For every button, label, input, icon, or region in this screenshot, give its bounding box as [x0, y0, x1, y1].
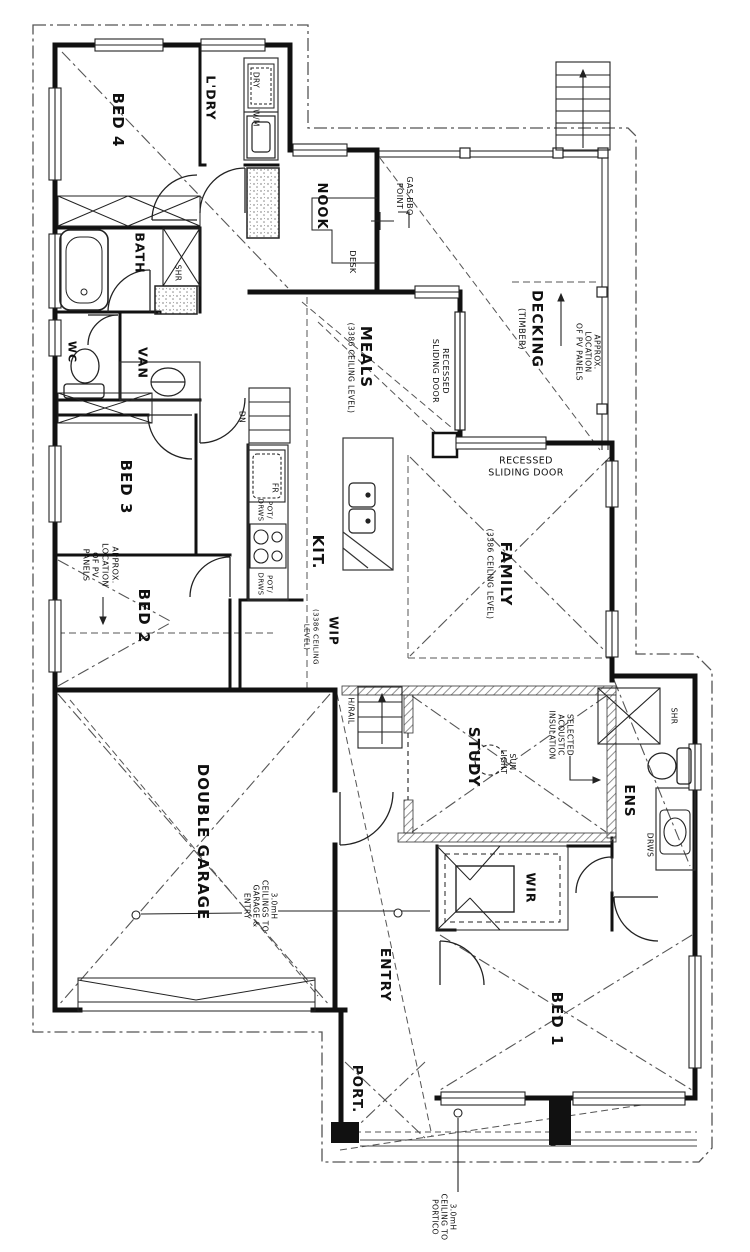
label-pot-drws-2: POT/ DRWS [256, 573, 273, 596]
door-wc [88, 315, 118, 345]
label-fr: FR [270, 483, 279, 493]
window [49, 88, 61, 180]
label-pot-drws-1: POT/ DRWS [256, 499, 273, 522]
label-ens: ENS [621, 784, 637, 817]
window [49, 446, 61, 522]
portico-slab-edge [360, 1140, 697, 1146]
label-decking-sub: (TIMBER) [516, 308, 526, 350]
fridge-space-icon [249, 450, 285, 502]
window [49, 320, 61, 356]
label-ldry: L'DRY [203, 75, 218, 120]
label-meals-ceiling: (3386 CEILING LEVEL) [346, 323, 355, 414]
portico-ceiling-leader [454, 1109, 462, 1192]
door-bed1 [614, 897, 658, 941]
label-dry: DRY [251, 72, 260, 88]
door-entry-front [340, 792, 393, 845]
window [201, 39, 265, 51]
sliding-door-deck [455, 312, 465, 430]
window [415, 286, 459, 298]
label-wm: W/M [251, 109, 260, 127]
door-bed3 [148, 415, 192, 459]
label-entry: ENTRY [377, 948, 393, 1002]
window [689, 956, 701, 1068]
window [49, 600, 61, 672]
garage-door-icon [78, 978, 315, 1011]
toilet-ens-icon [648, 748, 691, 784]
label-acoustic: SELECTED ACOUSTIC INSULATION [547, 710, 574, 759]
label-garage: DOUBLE GARAGE [194, 764, 212, 920]
label-family-ceiling: (3386 CEILING LEVEL) [485, 529, 494, 620]
basin-icon [151, 368, 185, 396]
label-study: STUDY [465, 727, 483, 787]
window [441, 1092, 525, 1105]
garage-ceiling-leader [132, 911, 430, 919]
wall-piers [331, 433, 571, 1145]
floor-plan-page: BED 4 L'DRY DRY W/M BATH SHR WC VAN BED … [0, 0, 750, 1252]
label-bed1: BED 1 [548, 992, 566, 1047]
stairs-entry [358, 687, 402, 748]
window [95, 39, 163, 51]
door-bath [108, 270, 150, 312]
window [606, 461, 618, 507]
window [456, 437, 546, 449]
label-wip-ceiling: (3386 CEILING LEVEL) [302, 609, 319, 665]
label-recessed-deck: RECESSED SLIDING DOOR [430, 339, 450, 403]
island-sink-icon [349, 483, 375, 533]
cooktop-icon [250, 524, 286, 568]
window [606, 611, 618, 657]
label-decking: DECKING [527, 290, 544, 368]
door-hall-bed1 [440, 941, 484, 985]
label-meals: MEALS [357, 326, 375, 388]
bathtub-icon [60, 230, 108, 310]
label-recessed-family: RECESSED SLIDING DOOR [488, 455, 563, 478]
window [573, 1092, 685, 1105]
label-shr-bath: SHR [173, 265, 182, 282]
label-wip: WIP [326, 616, 341, 646]
robe-bed4 [58, 196, 200, 226]
label-hrail: H/RAIL [346, 698, 355, 725]
label-van: VAN [135, 347, 150, 379]
label-desk: DESK [347, 250, 357, 273]
label-bed4: BED 4 [109, 93, 127, 148]
label-dn: DN [237, 411, 246, 423]
stairs-deck [556, 62, 610, 150]
label-port: PORT. [349, 1065, 365, 1113]
label-bath: BATH [132, 232, 147, 273]
label-pv-left: APPROX. LOCATION OF PV PANELS [81, 543, 120, 587]
label-kit: KIT. [309, 535, 327, 570]
label-sun-light: SUN LIGHT [499, 750, 517, 774]
door-ldry [200, 168, 245, 213]
floor-plan-drawing [0, 0, 750, 1252]
label-portico-ceiling: 3.0mH CEILING TO PORTICO [430, 1194, 457, 1241]
window [293, 144, 347, 156]
label-nook: NOOK [313, 182, 329, 229]
entry-setout-node [394, 909, 402, 917]
label-pv-deck: APPROX. LOCATION OF PV PANELS [574, 323, 601, 381]
stairs-dn [249, 388, 290, 443]
label-drws-ens: DRWS [645, 833, 654, 857]
basin-ens-icon [660, 810, 690, 854]
internal-walls [55, 45, 612, 930]
label-family: FAMILY [497, 542, 515, 607]
label-wir: WIR [523, 872, 538, 903]
wardrobe-wir [437, 846, 568, 930]
label-shr-ens: SHR [669, 708, 678, 725]
label-garage-ceiling: 3.0mH CEILINGS TO GARAGE & ENTRY [242, 880, 279, 932]
door-ens [576, 857, 612, 893]
door-bed2 [190, 557, 230, 597]
label-bed2: BED 2 [135, 589, 153, 644]
robe-bed3 [58, 393, 152, 423]
label-bed3: BED 3 [117, 460, 135, 515]
label-wc: WC [65, 341, 78, 363]
label-gas-bbq: GAS BBQ POINT [394, 176, 414, 215]
